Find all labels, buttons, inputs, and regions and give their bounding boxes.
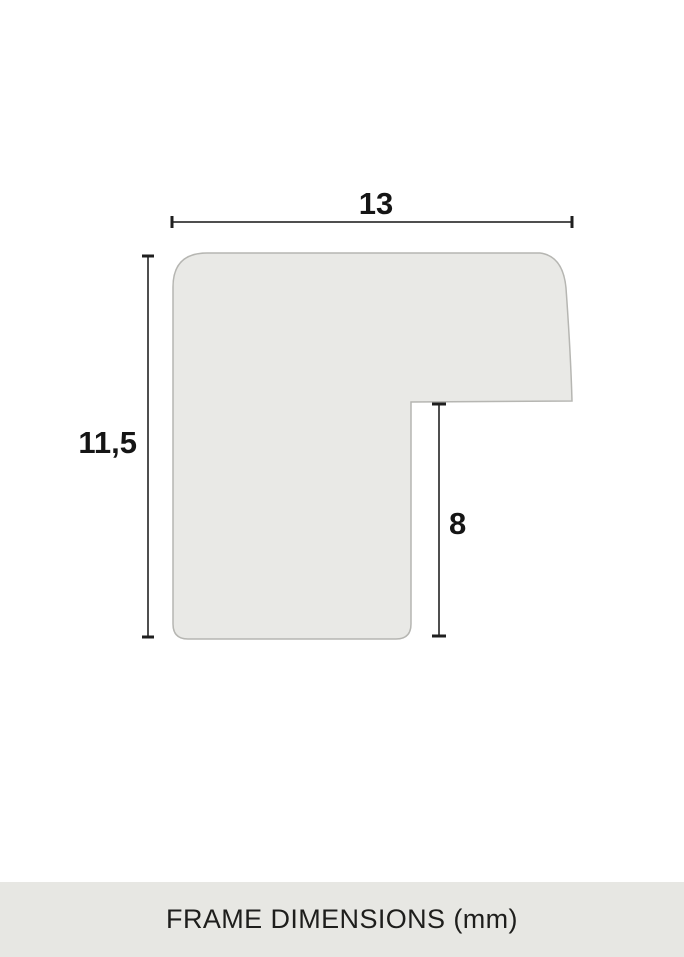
width-dimension-label: 13 — [359, 186, 393, 221]
footer-bar: FRAME DIMENSIONS (mm) — [0, 882, 684, 957]
footer-caption: FRAME DIMENSIONS (mm) — [166, 904, 518, 935]
height-dimension-label: 11,5 — [78, 425, 137, 460]
rabbet-dimension: 8 — [432, 404, 466, 636]
width-dimension: 13 — [172, 186, 572, 228]
height-dimension: 11,5 — [78, 256, 154, 637]
frame-profile-diagram: 13 11,5 8 — [0, 0, 684, 882]
frame-profile-svg: 13 11,5 8 — [0, 0, 684, 882]
rabbet-dimension-label: 8 — [449, 506, 466, 541]
frame-profile-shape — [173, 253, 572, 639]
